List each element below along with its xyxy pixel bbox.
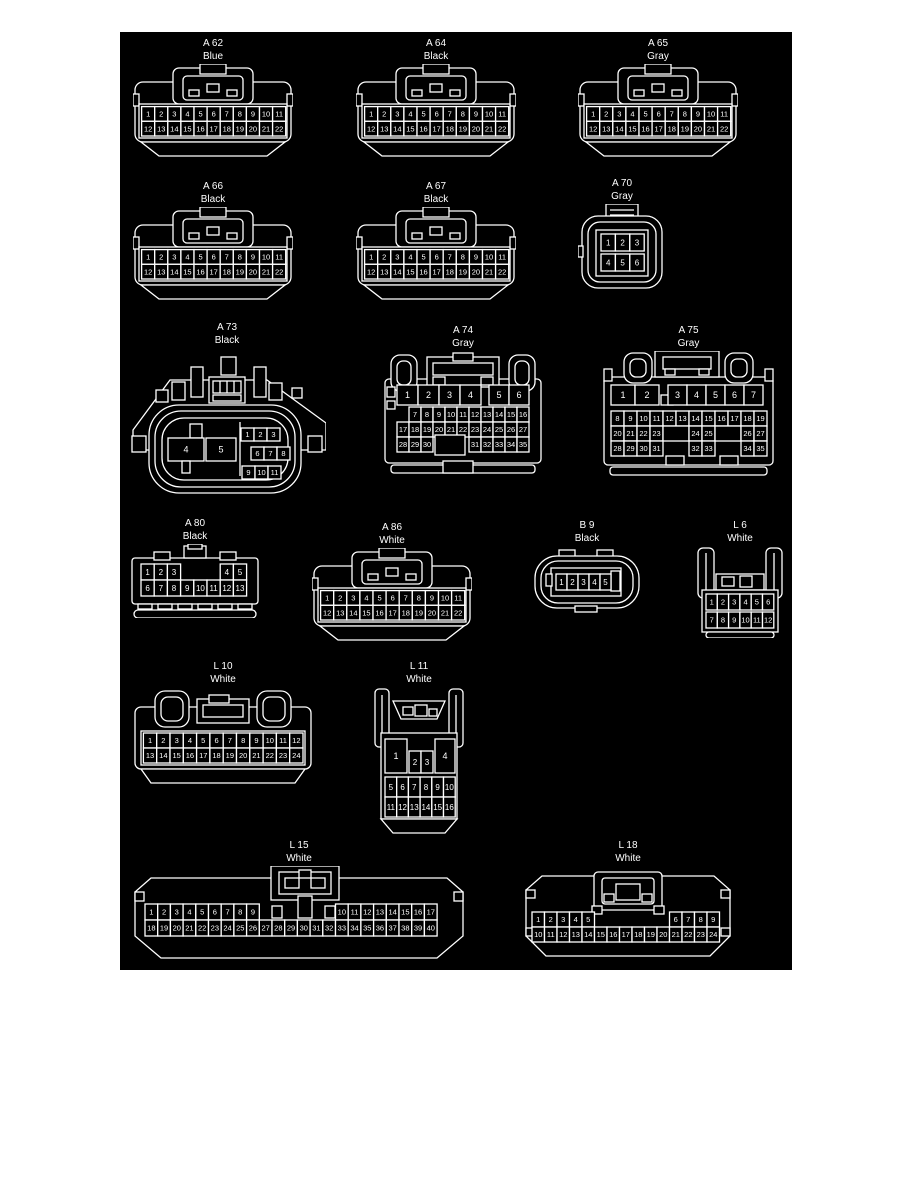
connector-id-label: A 67: [356, 180, 516, 193]
pin-number: 3: [447, 390, 452, 400]
pin-number: 5: [201, 736, 205, 745]
pin-number: 12: [144, 267, 152, 276]
pin-number: 27: [261, 924, 269, 933]
pin-number: 12: [367, 267, 375, 276]
connector-shape: [161, 697, 183, 721]
connector-shape: [575, 606, 597, 612]
connector-outline: [586, 142, 730, 156]
pin-number: 39: [414, 924, 422, 933]
pin-number: 8: [417, 594, 421, 603]
pin-number: 7: [404, 594, 408, 603]
pin-number: 4: [185, 253, 189, 262]
connector-shape: [430, 84, 442, 92]
pin-number: 5: [755, 598, 759, 607]
connector-color-label: Black: [356, 50, 516, 63]
connector-shape: [630, 359, 646, 377]
connector-shape: [191, 367, 203, 397]
pin-number: 15: [406, 124, 414, 133]
connector-shape: [386, 568, 398, 576]
pin-number: 4: [408, 110, 412, 119]
pin-number: 12: [323, 608, 331, 617]
connector-l10: L 10White1234567891011121314151617181920…: [133, 660, 313, 789]
connector-a66: A 66Black1234567891011121314151617181920…: [133, 180, 293, 303]
pin-number: 16: [196, 124, 204, 133]
pin-number: 7: [228, 736, 232, 745]
pin-number: 25: [236, 924, 244, 933]
pin-number: 8: [241, 736, 245, 745]
pin-number: 22: [498, 267, 506, 276]
connector-drawing: 12345678910111213141516171819202122: [578, 64, 738, 160]
pin-number: 4: [188, 736, 192, 745]
pin-number: 16: [414, 908, 422, 917]
connector-shape: [604, 369, 612, 381]
pin-number: 18: [743, 414, 751, 423]
pin-number: 3: [675, 390, 680, 400]
pin-number: 21: [441, 608, 449, 617]
pin-number: 14: [691, 414, 699, 423]
pin-number: 15: [401, 908, 409, 917]
pin-number: 8: [172, 584, 177, 593]
pin-number: 25: [495, 425, 503, 434]
connector-id-label: A 62: [133, 37, 293, 50]
pin-number: 10: [262, 110, 270, 119]
connector-l18: L 18White1234567891011121314151617181920…: [518, 839, 738, 961]
pin-number: 8: [425, 410, 429, 419]
pin-number: 20: [239, 751, 247, 760]
pin-number: 5: [377, 594, 381, 603]
connector-shape: [182, 461, 190, 473]
connector-shape: [433, 377, 445, 385]
pin-number: 6: [145, 584, 150, 593]
connector-shape: [218, 604, 232, 609]
connector-id-label: A 80: [130, 517, 260, 530]
pin-number: 14: [393, 267, 401, 276]
pin-number: 4: [364, 594, 368, 603]
pin-number: 4: [468, 390, 473, 400]
pin-number: 9: [474, 253, 478, 262]
pin-number: 17: [432, 124, 440, 133]
pin-number: 16: [445, 803, 454, 812]
connector-shape: [298, 896, 312, 918]
pin-number: 40: [427, 924, 435, 933]
pin-number: 16: [609, 930, 617, 939]
pin-number: 22: [720, 124, 728, 133]
connector-shape: [699, 369, 709, 375]
pin-number: 2: [382, 253, 386, 262]
pin-number: 19: [459, 124, 467, 133]
pin-number: 28: [613, 444, 621, 453]
pin-number: 16: [375, 608, 383, 617]
connector-shape: [287, 237, 293, 249]
pin-number: 10: [741, 616, 749, 625]
connector-shape: [189, 90, 199, 96]
pin-number: 14: [388, 908, 396, 917]
pin-number: 6: [635, 258, 640, 267]
pin-number: 21: [262, 124, 270, 133]
connector-a64: A 64Black1234567891011121314151617181920…: [356, 37, 516, 160]
pin-number: 7: [413, 410, 417, 419]
pin-number: 9: [628, 414, 632, 423]
pin-number: 10: [266, 736, 274, 745]
pin-number: 16: [519, 410, 527, 419]
connector-drawing: 123456789101112131415161718192021222324: [518, 866, 738, 961]
pin-number: 10: [485, 253, 493, 262]
pin-number: 13: [380, 124, 388, 133]
pin-number: 8: [281, 449, 285, 458]
pin-number: 9: [251, 908, 255, 917]
pin-number: 8: [238, 110, 242, 119]
pin-number: 11: [454, 594, 462, 603]
pin-number: 12: [363, 908, 371, 917]
connector-id-label: B 9: [533, 519, 641, 532]
pin-number: 10: [445, 783, 454, 792]
connector-shape: [263, 697, 285, 721]
connector-shape: [285, 878, 299, 888]
connector-shape: [433, 363, 493, 375]
pin-number: 2: [161, 736, 165, 745]
pin-number: 35: [756, 444, 764, 453]
pin-number: 22: [198, 924, 206, 933]
pin-number: 2: [162, 908, 166, 917]
connector-outline: [364, 142, 508, 156]
connector-b9: B 9Black12345: [533, 519, 641, 614]
connector-shape: [227, 233, 237, 239]
pin-number: 6: [516, 390, 521, 400]
pin-number: 15: [628, 124, 636, 133]
pin-number: 13: [410, 803, 419, 812]
pin-number: 1: [559, 578, 564, 587]
connector-id-label: L 6: [696, 519, 784, 532]
pin-number: 18: [402, 608, 410, 617]
pin-number: 24: [483, 425, 491, 434]
pin-number: 5: [421, 253, 425, 262]
pin-number: 6: [213, 908, 217, 917]
pin-number: 20: [694, 124, 702, 133]
connector-color-label: Black: [533, 532, 641, 545]
pin-number: 13: [157, 124, 165, 133]
pin-number: 18: [634, 930, 642, 939]
connector-color-label: Black: [356, 193, 516, 206]
pin-number: 14: [421, 803, 430, 812]
connector-shape: [666, 456, 684, 465]
pin-number: 5: [421, 110, 425, 119]
pin-number: 1: [369, 110, 373, 119]
pin-number: 16: [196, 267, 204, 276]
connector-drawing: 123456789101112: [696, 546, 784, 638]
pin-number: 3: [172, 568, 177, 577]
connector-shape: [672, 90, 682, 96]
pin-number: 6: [657, 110, 661, 119]
pin-number: 15: [433, 803, 442, 812]
pin-number: 34: [743, 444, 751, 453]
pin-number: 21: [485, 267, 493, 276]
connector-shape: [578, 94, 584, 106]
connector-shape: [203, 705, 243, 717]
connector-shape: [299, 870, 311, 878]
pin-number: 21: [252, 751, 260, 760]
connector-a75: A 75Gray12345678910111213141516171819202…: [602, 324, 775, 481]
pin-number: 8: [238, 253, 242, 262]
connector-shape: [665, 369, 675, 375]
connector-drawing: 4512367891011: [128, 348, 326, 500]
pin-number: 22: [275, 124, 283, 133]
pin-number: 21: [447, 425, 455, 434]
connector-shape: [453, 353, 473, 361]
pin-number: 17: [730, 414, 738, 423]
pin-number: 3: [395, 110, 399, 119]
pin-number: 4: [606, 258, 611, 267]
pin-number: 13: [157, 267, 165, 276]
connector-shape: [190, 424, 202, 438]
connector-shape: [732, 94, 738, 106]
pin-number: 16: [641, 124, 649, 133]
pin-number: 14: [170, 267, 178, 276]
connector-color-label: White: [133, 852, 465, 865]
pin-number: 9: [711, 915, 715, 924]
connector-shape: [721, 890, 730, 898]
connector-color-label: Black: [130, 530, 260, 543]
pin-number: 21: [185, 924, 193, 933]
connector-shape: [198, 604, 212, 609]
pin-number: 23: [211, 924, 219, 933]
pin-number: 10: [257, 468, 265, 477]
pin-number: 9: [246, 468, 250, 477]
pin-number: 12: [222, 584, 231, 593]
connector-shape: [227, 90, 237, 96]
pin-number: 11: [351, 908, 359, 917]
connector-shape: [221, 357, 236, 375]
connector-shape: [133, 94, 139, 106]
pin-number: 5: [238, 568, 243, 577]
pin-number: 13: [572, 930, 580, 939]
pin-number: 19: [226, 751, 234, 760]
pin-number: 2: [604, 110, 608, 119]
connector-shape: [481, 377, 493, 385]
pin-number: 17: [209, 124, 217, 133]
connector-color-label: White: [696, 532, 784, 545]
connector-color-label: Black: [133, 193, 293, 206]
pin-number: 2: [721, 598, 725, 607]
pin-number: 3: [617, 110, 621, 119]
connector-shape: [526, 890, 535, 898]
pin-number: 24: [292, 751, 300, 760]
pin-number: 1: [591, 110, 595, 119]
pin-number: 5: [218, 445, 223, 455]
connector-shape: [652, 84, 664, 92]
pin-number: 5: [603, 578, 608, 587]
pin-number: 16: [186, 751, 194, 760]
pin-number: 27: [519, 425, 527, 434]
connector-l11: L 11White12345678910111213141516: [369, 660, 469, 835]
pin-number: 14: [615, 124, 623, 133]
pin-number: 11: [209, 584, 218, 593]
pin-number: 1: [405, 390, 410, 400]
connector-a62: A 62Blue12345678910111213141516171819202…: [133, 37, 293, 160]
pin-number: 19: [459, 267, 467, 276]
connector-shape: [379, 548, 405, 558]
pin-number: 7: [268, 449, 272, 458]
connector-shape: [722, 577, 734, 586]
connector-shape: [135, 892, 144, 901]
connector-shape: [287, 94, 293, 106]
pin-number: 1: [245, 430, 249, 439]
connector-shape: [731, 359, 747, 377]
connector-a74: A 74Gray12345678910111213141516171819202…: [383, 324, 543, 477]
pin-number: 18: [223, 124, 231, 133]
pin-number: 19: [160, 924, 168, 933]
pin-number: 4: [185, 110, 189, 119]
connector-outline: [141, 142, 285, 156]
pin-number: 8: [461, 110, 465, 119]
connector-shape: [356, 237, 362, 249]
connector-shape: [721, 928, 730, 936]
connector-shape: [188, 544, 202, 549]
pin-number: 16: [419, 124, 427, 133]
pin-number: 15: [704, 414, 712, 423]
connector-shape: [645, 64, 671, 74]
connector-outline: [364, 285, 508, 299]
connector-shape: [207, 227, 219, 235]
pin-number: 20: [435, 425, 443, 434]
connector-shape: [423, 64, 449, 74]
connector-shape: [706, 632, 774, 638]
connector-shape: [450, 90, 460, 96]
connector-id-label: A 75: [602, 324, 775, 337]
pin-number: 6: [400, 783, 405, 792]
connector-shape: [466, 578, 472, 590]
connector-shape: [207, 84, 219, 92]
page: A 62Blue12345678910111213141516171819202…: [0, 0, 918, 1188]
pin-number: 2: [382, 110, 386, 119]
connector-shape: [454, 892, 463, 901]
connector-drawing: 123456: [578, 204, 666, 290]
pin-number: 19: [423, 425, 431, 434]
pin-number: 1: [325, 594, 329, 603]
pin-number: 17: [622, 930, 630, 939]
pin-number: 9: [254, 736, 258, 745]
pin-number: 3: [561, 915, 565, 924]
pin-number: 6: [435, 253, 439, 262]
pin-number: 10: [707, 110, 715, 119]
connector-color-label: Gray: [383, 337, 543, 350]
pin-number: 2: [338, 594, 342, 603]
pin-number: 4: [187, 908, 191, 917]
pin-number: 2: [426, 390, 431, 400]
pin-number: 3: [271, 430, 275, 439]
pin-number: 21: [626, 429, 634, 438]
connector-id-label: L 11: [369, 660, 469, 673]
pin-number: 4: [592, 578, 597, 587]
pin-number: 1: [146, 253, 150, 262]
pin-number: 5: [713, 390, 718, 400]
connector-drawing: 12345678910111213141516171819202122: [356, 64, 516, 160]
pin-number: 5: [198, 253, 202, 262]
pin-number: 5: [200, 908, 204, 917]
pin-number: 6: [732, 390, 737, 400]
pin-number: 18: [147, 924, 155, 933]
pin-number: 10: [196, 584, 205, 593]
pin-number: 20: [249, 267, 257, 276]
pin-number: 25: [704, 429, 712, 438]
pin-number: 4: [442, 751, 447, 761]
pin-number: 17: [427, 908, 435, 917]
pin-number: 28: [274, 924, 282, 933]
pin-number: 10: [338, 908, 346, 917]
pin-number: 2: [159, 253, 163, 262]
pin-number: 26: [249, 924, 257, 933]
connector-shape: [209, 695, 229, 703]
pin-number: 20: [659, 930, 667, 939]
pin-number: 1: [148, 736, 152, 745]
pin-number: 30: [300, 924, 308, 933]
pin-number: 24: [223, 924, 231, 933]
pin-number: 3: [351, 594, 355, 603]
pin-number: 19: [681, 124, 689, 133]
pin-number: 18: [223, 267, 231, 276]
pin-number: 2: [620, 238, 625, 247]
connector-shape: [715, 426, 741, 441]
connector-shape: [138, 604, 152, 609]
pin-number: 23: [471, 425, 479, 434]
pin-number: 2: [644, 390, 649, 400]
pin-number: 34: [350, 924, 358, 933]
connector-id-label: A 64: [356, 37, 516, 50]
pin-number: 11: [547, 930, 555, 939]
pin-number: 10: [639, 414, 647, 423]
pin-number: 20: [249, 124, 257, 133]
pin-number: 6: [214, 736, 218, 745]
pin-number: 14: [159, 751, 167, 760]
pin-number: 20: [173, 924, 181, 933]
pin-number: 1: [710, 598, 714, 607]
pin-number: 19: [415, 608, 423, 617]
connector-shape: [578, 246, 583, 257]
pin-number: 9: [474, 110, 478, 119]
connector-drawing: 12345678910111213141516171819202122: [133, 207, 293, 303]
connector-shape: [740, 576, 752, 587]
connector-shape: [308, 436, 322, 452]
pin-number: 17: [654, 124, 662, 133]
pin-number: 16: [419, 267, 427, 276]
connector-shape: [510, 94, 516, 106]
connector-shape: [430, 227, 442, 235]
connector-color-label: Gray: [578, 50, 738, 63]
pin-number: 19: [236, 124, 244, 133]
pin-number: 15: [597, 930, 605, 939]
connector-shape: [443, 461, 473, 473]
pin-number: 14: [584, 930, 592, 939]
connector-shape: [132, 436, 146, 452]
pin-number: 1: [393, 751, 398, 761]
pin-number: 15: [172, 751, 180, 760]
pin-number: 8: [238, 908, 242, 917]
pin-number: 11: [275, 253, 283, 262]
pin-number: 8: [721, 616, 725, 625]
pin-number: 11: [275, 110, 283, 119]
pin-number: 6: [255, 449, 259, 458]
connector-drawing: 12345678910111213141516: [369, 687, 469, 835]
pin-number: 21: [485, 124, 493, 133]
connector-shape: [272, 906, 282, 918]
pin-number: 6: [212, 253, 216, 262]
pin-number: 9: [732, 616, 736, 625]
connector-shape: [423, 207, 449, 217]
pin-number: 34: [507, 440, 515, 449]
pin-number: 14: [495, 410, 503, 419]
pin-number: 33: [338, 924, 346, 933]
connector-shape: [312, 578, 318, 590]
pin-number: 13: [236, 584, 245, 593]
